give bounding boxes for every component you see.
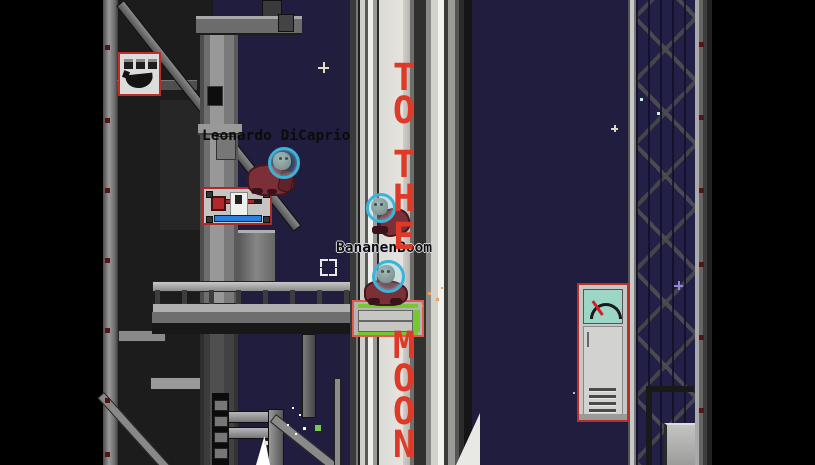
star-icon bbox=[318, 62, 329, 73]
rivet bbox=[105, 452, 110, 457]
player-character-bananenboom bbox=[360, 260, 412, 308]
rivet bbox=[105, 258, 110, 263]
railing-post bbox=[236, 290, 241, 304]
pipe-connector bbox=[214, 448, 228, 459]
void-right bbox=[712, 0, 815, 465]
railing-post bbox=[182, 290, 187, 304]
panel-screw bbox=[263, 216, 270, 223]
blue-gauge-bar bbox=[214, 215, 262, 222]
rivet bbox=[699, 42, 704, 47]
progress-bar bbox=[358, 310, 413, 321]
star-bar bbox=[611, 128, 618, 130]
gantry-rail bbox=[334, 378, 341, 465]
rocket-letter: N bbox=[390, 430, 418, 460]
tower-pipe bbox=[646, 386, 652, 465]
rivet bbox=[699, 115, 704, 120]
tower-pipe bbox=[646, 386, 694, 392]
tower-rail-right bbox=[695, 0, 712, 465]
rivet bbox=[699, 262, 704, 267]
gorilla-foot bbox=[390, 298, 402, 305]
space-helmet bbox=[372, 260, 405, 293]
railing-post bbox=[290, 290, 295, 304]
star-dot bbox=[303, 427, 306, 430]
panel-screw bbox=[206, 216, 213, 223]
card-glyph bbox=[235, 195, 242, 204]
game-viewport: Leonardo DiCaprio BananenBoom TOTHEMOON bbox=[0, 0, 815, 465]
star-bar bbox=[318, 67, 329, 69]
tower-crate bbox=[664, 423, 699, 465]
star-dot bbox=[287, 424, 289, 426]
player-character-leonardo bbox=[243, 148, 303, 196]
space-helmet bbox=[268, 147, 300, 179]
awning-bracket bbox=[278, 14, 294, 32]
banana-icon bbox=[125, 73, 153, 90]
star-icon bbox=[611, 125, 618, 132]
tower-rail-left bbox=[628, 0, 636, 465]
star-icon bbox=[674, 281, 683, 290]
star-dot bbox=[292, 407, 294, 409]
poster-glyph bbox=[124, 59, 133, 69]
star-dot bbox=[640, 98, 643, 101]
particle-square bbox=[315, 425, 321, 431]
rivet bbox=[699, 408, 704, 413]
rivet bbox=[105, 188, 110, 193]
gorilla-foot bbox=[372, 226, 388, 234]
star-dot bbox=[264, 441, 268, 445]
rocket-letter: T bbox=[390, 150, 418, 180]
rivet bbox=[105, 328, 110, 333]
window bbox=[207, 86, 223, 106]
building-wall-b bbox=[238, 230, 275, 286]
bridge-underside bbox=[152, 323, 358, 334]
railing-post bbox=[155, 290, 160, 304]
rivet bbox=[699, 335, 704, 340]
pipe-connector bbox=[214, 432, 228, 443]
banana-poster[interactable] bbox=[118, 52, 161, 96]
door-handle bbox=[587, 332, 589, 347]
gorilla-foot bbox=[267, 189, 277, 194]
lever-handle[interactable] bbox=[211, 196, 226, 211]
crosshair-icon bbox=[320, 259, 337, 276]
star-dot bbox=[573, 392, 575, 394]
player-name-label: Leonardo DiCaprio bbox=[202, 128, 350, 144]
vent-slit bbox=[589, 395, 616, 398]
star-dot bbox=[657, 112, 660, 115]
star-dot bbox=[428, 292, 431, 295]
gorilla-foot bbox=[251, 188, 263, 194]
poster-glyph bbox=[136, 59, 145, 69]
vent-slit bbox=[589, 402, 616, 405]
star-dot bbox=[421, 305, 423, 307]
railing-post bbox=[263, 290, 268, 304]
railing-post bbox=[317, 290, 322, 304]
vent-slit bbox=[589, 388, 616, 391]
gauge-machine[interactable] bbox=[577, 283, 629, 422]
railing-post bbox=[344, 290, 349, 304]
star-bar bbox=[674, 285, 683, 287]
bridge-slab bbox=[152, 312, 358, 323]
gauge-screen bbox=[583, 289, 623, 324]
support-column bbox=[302, 334, 316, 418]
rivet bbox=[105, 398, 110, 403]
star-dot bbox=[299, 414, 301, 416]
rivet bbox=[105, 118, 110, 123]
panel-screw bbox=[206, 191, 213, 198]
void-left bbox=[0, 0, 103, 465]
pipe-connector bbox=[214, 400, 228, 411]
machine-base bbox=[579, 414, 627, 420]
rocket-letter: E bbox=[390, 222, 418, 252]
progress-bar-fill bbox=[413, 310, 420, 321]
vent-slit bbox=[589, 409, 616, 412]
tower-lattice bbox=[636, 0, 695, 465]
rivet bbox=[105, 45, 110, 50]
star-dot bbox=[295, 433, 297, 435]
star-dot bbox=[441, 287, 443, 289]
pipe-connector bbox=[214, 416, 228, 427]
poster-glyph bbox=[148, 59, 157, 69]
rocket-letter: O bbox=[390, 96, 418, 126]
gorilla-foot bbox=[368, 298, 380, 305]
rivet bbox=[699, 188, 704, 193]
star-dot bbox=[436, 298, 439, 301]
rocket-letter: H bbox=[390, 184, 418, 214]
railing-post bbox=[209, 290, 214, 304]
